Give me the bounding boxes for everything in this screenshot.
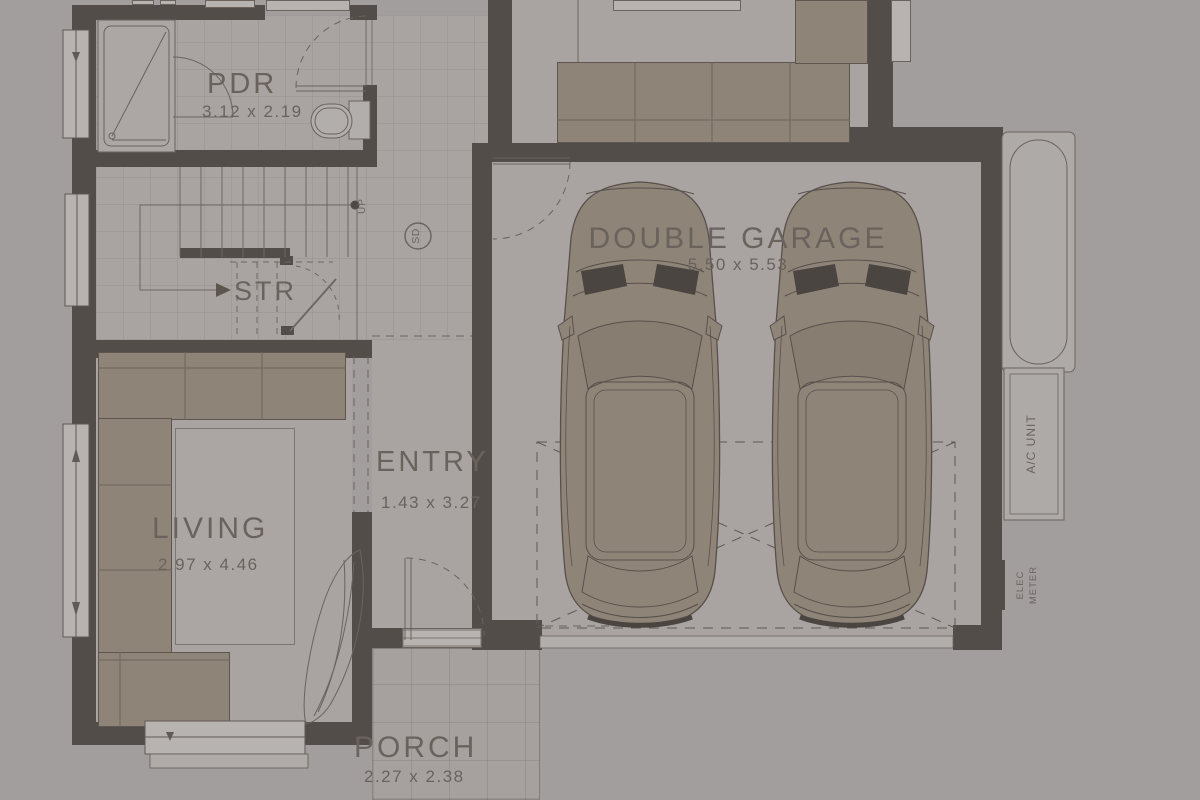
- bench-cutoff: [132, 0, 154, 5]
- elec-meter-label: ELEC METER: [1014, 555, 1040, 615]
- room-label-str: STR: [234, 278, 297, 305]
- elec-meter-line1: ELEC: [1014, 555, 1027, 615]
- floor-plan: PDR 3.12 x 2.19 STR UP LIVING 2.97 x 4.4…: [0, 0, 1200, 800]
- wall: [350, 5, 377, 20]
- sofa-living-chaise: [98, 652, 230, 727]
- room-label-pdr: PDR: [207, 70, 277, 99]
- door-jamb: [280, 256, 293, 265]
- bench-cutoff: [160, 0, 176, 5]
- room-dims-entry: 1.43 x 3.27: [381, 494, 482, 511]
- wall: [868, 0, 893, 143]
- floor-entry: [372, 340, 472, 628]
- wall: [352, 512, 372, 745]
- wall: [953, 625, 1002, 650]
- door-jamb: [281, 326, 294, 335]
- window-top-pdr: [266, 0, 350, 11]
- garage-roller-door: [540, 636, 953, 648]
- wall: [363, 85, 377, 167]
- room-label-living: LIVING: [152, 514, 268, 544]
- wall: [488, 0, 512, 143]
- room-dims-porch: 2.27 x 2.38: [364, 768, 465, 785]
- stairs-up-label: UP: [358, 194, 370, 218]
- smoke-detector-label: SD: [411, 224, 425, 248]
- sofa-top-room-arm: [795, 0, 868, 64]
- sofa-living-top: [98, 352, 346, 420]
- front-door-threshold: [402, 628, 482, 648]
- room-label-garage: DOUBLE GARAGE: [563, 224, 913, 254]
- bench-cutoff: [205, 0, 255, 8]
- ac-unit-label: A/C UNIT: [1025, 404, 1039, 484]
- elec-meter-box: [999, 560, 1005, 610]
- wall: [472, 143, 492, 650]
- sofa-top-room: [557, 62, 850, 143]
- wall: [72, 150, 377, 167]
- elec-meter-line2: METER: [1027, 555, 1040, 615]
- room-dims-living: 2.97 x 4.46: [158, 556, 259, 573]
- room-label-entry: ENTRY: [376, 448, 489, 477]
- room-dims-pdr: 3.12 x 2.19: [202, 103, 303, 120]
- window-top-room: [891, 0, 911, 62]
- room-label-porch: PORCH: [354, 733, 477, 763]
- table-cutoff: [613, 0, 741, 11]
- wall: [72, 5, 96, 745]
- room-dims-garage: 5.50 x 5.53: [633, 256, 843, 273]
- stair-half-wall: [180, 248, 290, 258]
- wall: [372, 628, 402, 648]
- planter: [1002, 132, 1075, 372]
